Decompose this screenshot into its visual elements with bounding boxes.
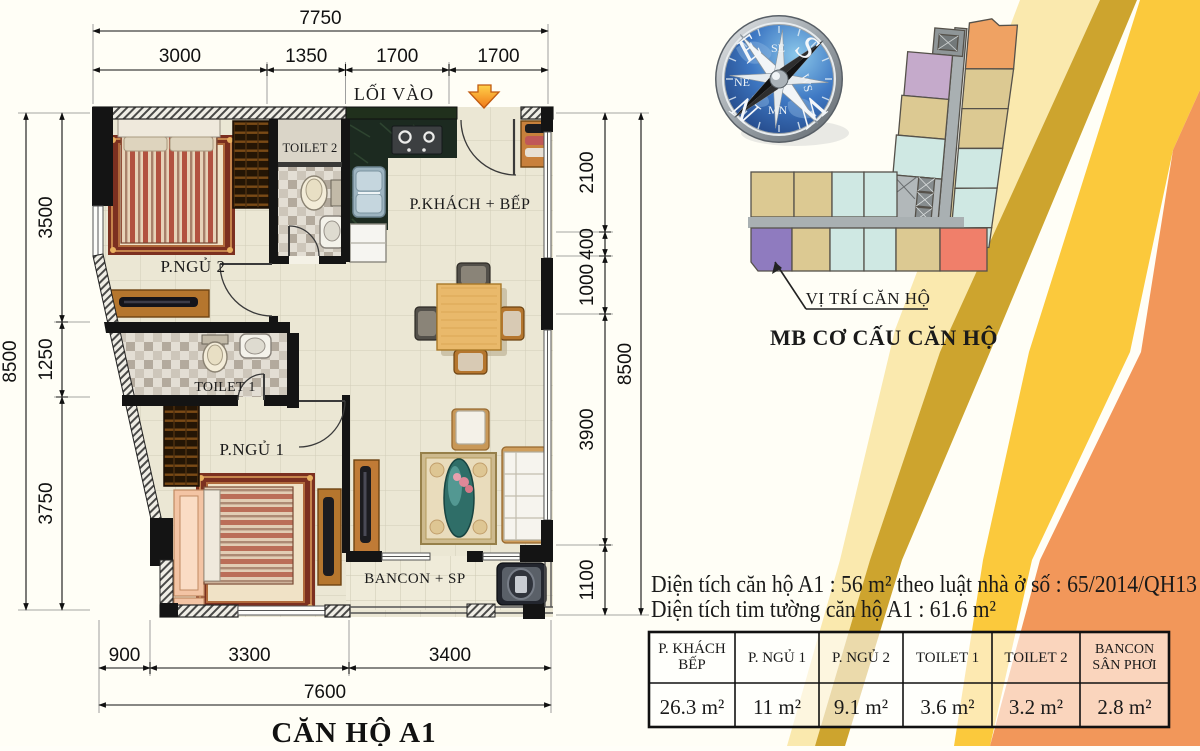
svg-text:3750: 3750 (36, 482, 57, 524)
svg-text:P.NGỦ 2: P.NGỦ 2 (161, 257, 226, 276)
svg-text:9.1 m²: 9.1 m² (834, 695, 888, 719)
svg-text:3300: 3300 (228, 645, 270, 666)
svg-text:3900: 3900 (577, 408, 598, 450)
svg-text:8500: 8500 (615, 343, 636, 385)
svg-text:7600: 7600 (304, 682, 346, 703)
svg-text:P. NGỦ 1: P. NGỦ 1 (748, 649, 806, 666)
svg-text:3500: 3500 (36, 196, 57, 238)
svg-text:3000: 3000 (159, 46, 201, 67)
svg-text:3.2 m²: 3.2 m² (1009, 695, 1063, 719)
svg-text:400: 400 (577, 228, 598, 260)
svg-text:BANCON: BANCON (1095, 642, 1154, 657)
svg-text:MN: MN (768, 103, 788, 117)
svg-text:1350: 1350 (285, 46, 327, 67)
svg-text:1000: 1000 (577, 264, 598, 306)
svg-text:TOILET 2: TOILET 2 (1004, 650, 1067, 666)
svg-text:P. NGỦ 2: P. NGỦ 2 (832, 649, 890, 666)
svg-text:1100: 1100 (577, 560, 598, 601)
svg-text:1700: 1700 (477, 46, 519, 67)
svg-text:P.NGỦ 1: P.NGỦ 1 (220, 440, 285, 459)
svg-text:Diện tích căn hộ A1 : 56 m² th: Diện tích căn hộ A1 : 56 m² theo luật nh… (651, 572, 1197, 598)
svg-text:CĂN HỘ A1: CĂN HỘ A1 (271, 716, 436, 746)
svg-text:26.3 m²: 26.3 m² (660, 695, 725, 719)
svg-text:P. KHÁCH: P. KHÁCH (658, 640, 726, 657)
svg-text:3400: 3400 (429, 645, 471, 666)
svg-text:P.KHÁCH + BẾP: P.KHÁCH + BẾP (410, 194, 531, 213)
svg-text:1250: 1250 (36, 338, 57, 380)
svg-text:SÂN PHƠI: SÂN PHƠI (1092, 656, 1157, 673)
svg-text:2.8 m²: 2.8 m² (1097, 695, 1151, 719)
svg-text:TOILET 2: TOILET 2 (282, 141, 337, 155)
svg-text:NE: NE (734, 75, 750, 89)
svg-text:LỐI VÀO: LỐI VÀO (354, 83, 434, 104)
svg-text:3.6 m²: 3.6 m² (920, 695, 974, 719)
svg-text:1700: 1700 (376, 46, 418, 67)
svg-text:SE: SE (771, 41, 785, 55)
svg-text:8500: 8500 (0, 340, 21, 382)
svg-text:VỊ TRÍ CĂN HỘ: VỊ TRÍ CĂN HỘ (806, 289, 931, 308)
svg-text:MB CƠ CẤU CĂN HỘ: MB CƠ CẤU CĂN HỘ (770, 325, 998, 350)
svg-text:7750: 7750 (299, 8, 341, 29)
svg-text:900: 900 (109, 645, 141, 666)
svg-text:BANCON + SP: BANCON + SP (364, 571, 465, 587)
svg-text:BẾP: BẾP (678, 656, 706, 673)
svg-text:TOILET 1: TOILET 1 (916, 650, 979, 666)
svg-text:TOILET 1: TOILET 1 (194, 380, 255, 395)
svg-text:11 m²: 11 m² (753, 695, 801, 719)
svg-text:2100: 2100 (577, 151, 598, 193)
svg-text:Diện tích tim tường căn hộ A1: Diện tích tim tường căn hộ A1 : 61.6 m² (651, 597, 996, 623)
